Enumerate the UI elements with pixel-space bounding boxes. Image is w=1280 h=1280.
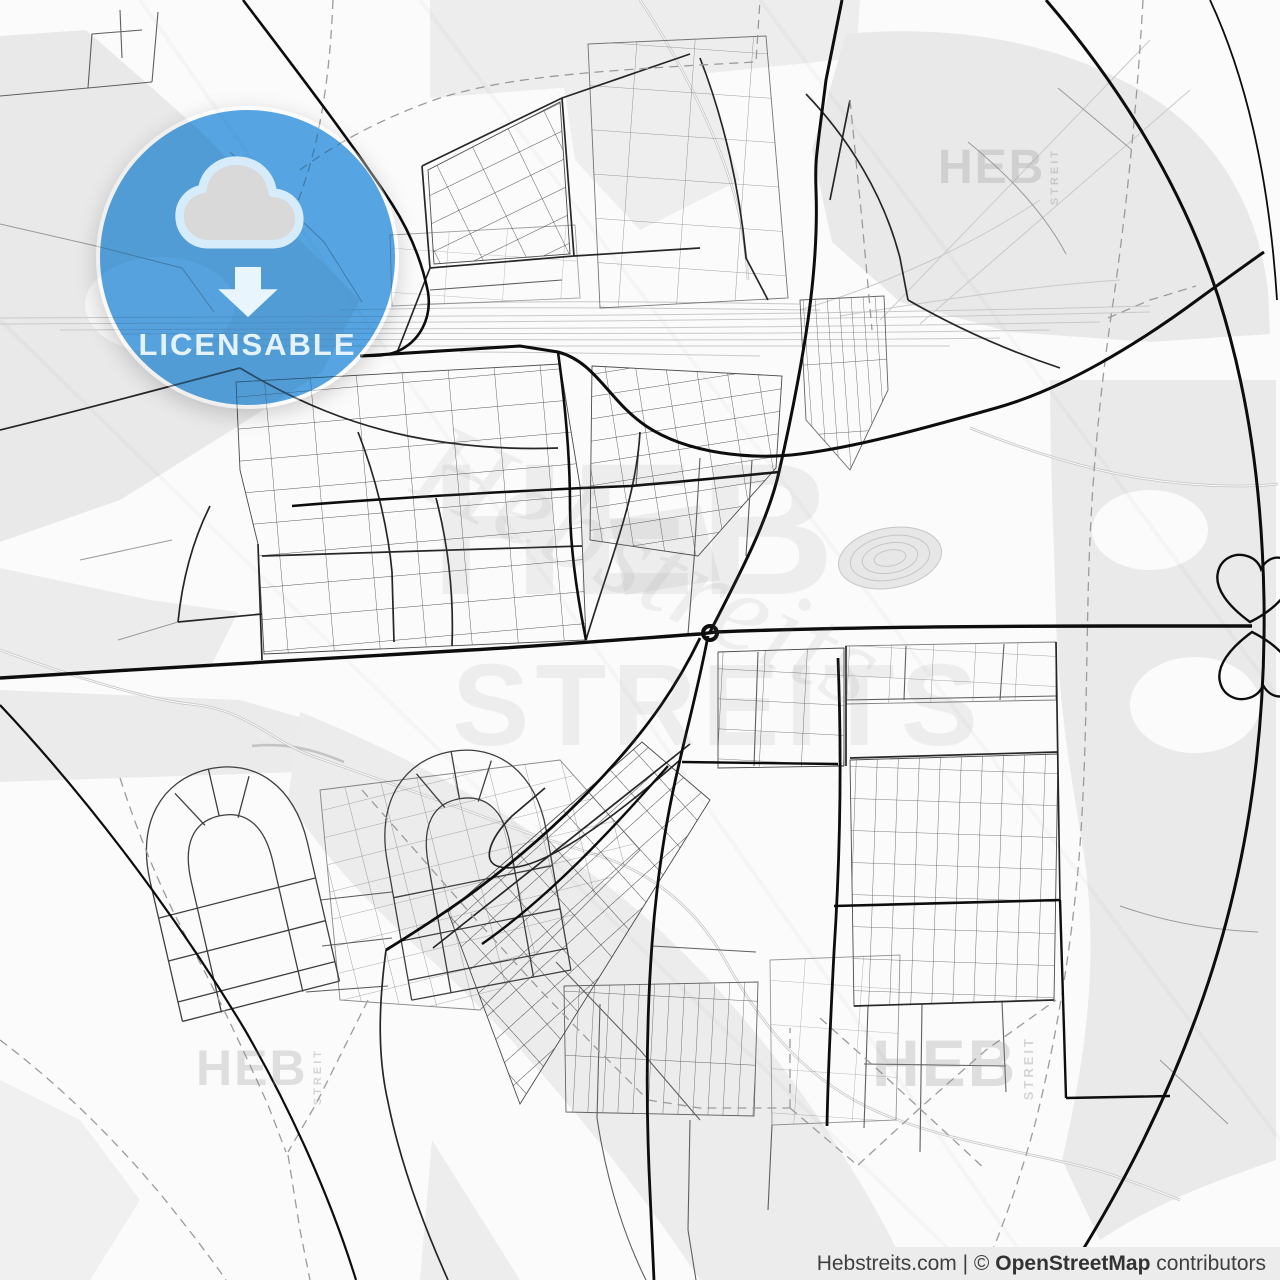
- attribution-license-link[interactable]: OpenStreetMap: [995, 1252, 1150, 1276]
- download-arrow-icon: [172, 267, 324, 319]
- map-preview-page: { "page": { "kind": "licensable-vector-m…: [0, 0, 1280, 1280]
- licensable-badge[interactable]: LICENSABLE: [100, 110, 395, 405]
- attribution-bar: Hebstreits.com | © OpenStreetMap contrib…: [793, 1247, 1280, 1280]
- stadium-contours: [834, 519, 947, 596]
- attribution-source-link[interactable]: Hebstreits.com: [817, 1252, 957, 1276]
- badge-label: LICENSABLE: [138, 327, 356, 363]
- cloud-icon: [172, 153, 324, 267]
- attribution-suffix: contributors: [1156, 1252, 1266, 1276]
- attribution-copyright: ©: [974, 1252, 989, 1276]
